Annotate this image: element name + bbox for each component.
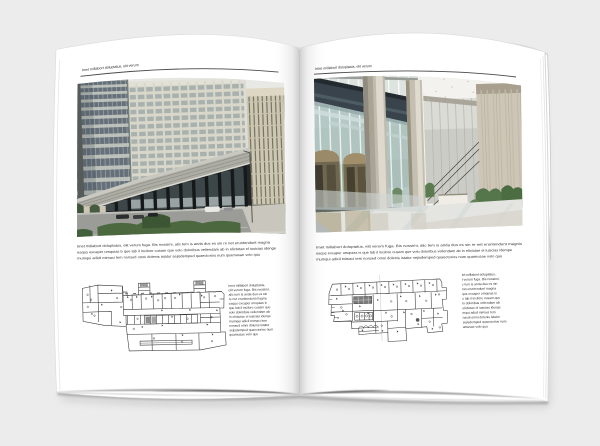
svg-text:amusae volo quu: amusae volo quu: [463, 325, 488, 330]
svg-text:quamusae volo quu: quamusae volo quu: [229, 332, 258, 337]
